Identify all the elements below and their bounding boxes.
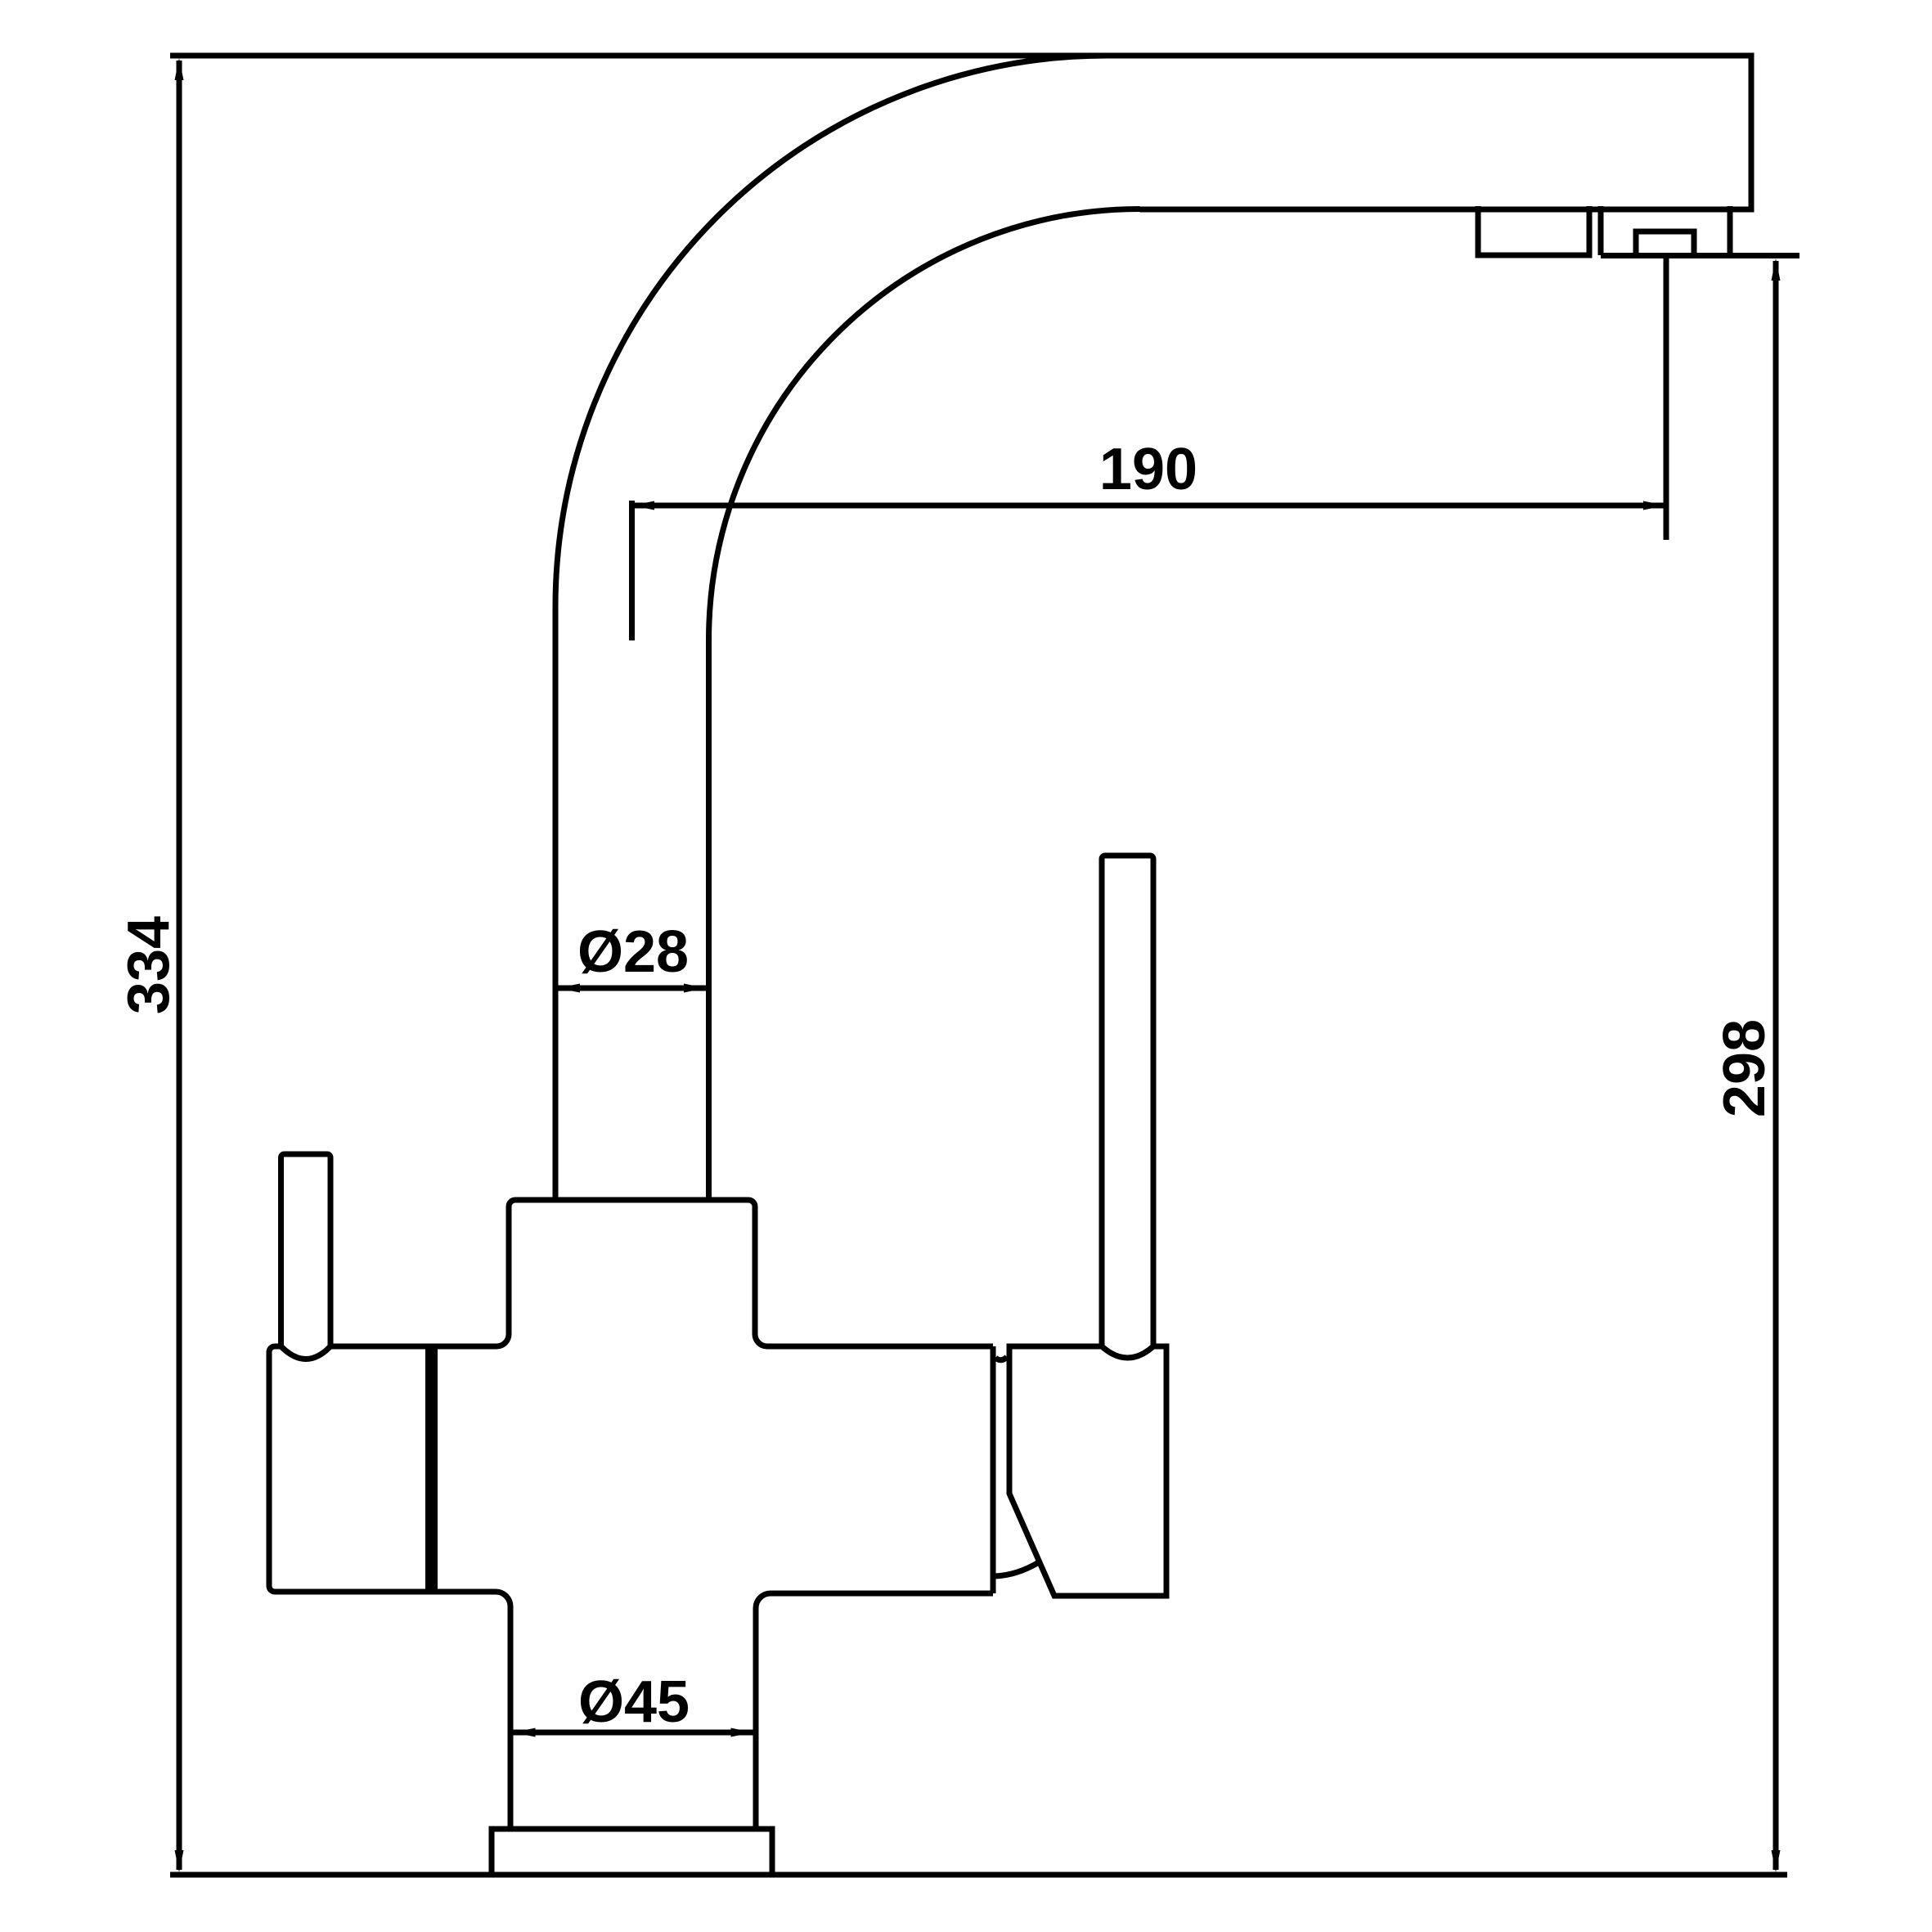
svg-text:298: 298 bbox=[1712, 1019, 1777, 1117]
svg-text:190: 190 bbox=[1099, 437, 1197, 502]
svg-text:334: 334 bbox=[116, 916, 182, 1014]
svg-text:Ø28: Ø28 bbox=[577, 919, 689, 985]
svg-text:Ø45: Ø45 bbox=[578, 1669, 690, 1735]
